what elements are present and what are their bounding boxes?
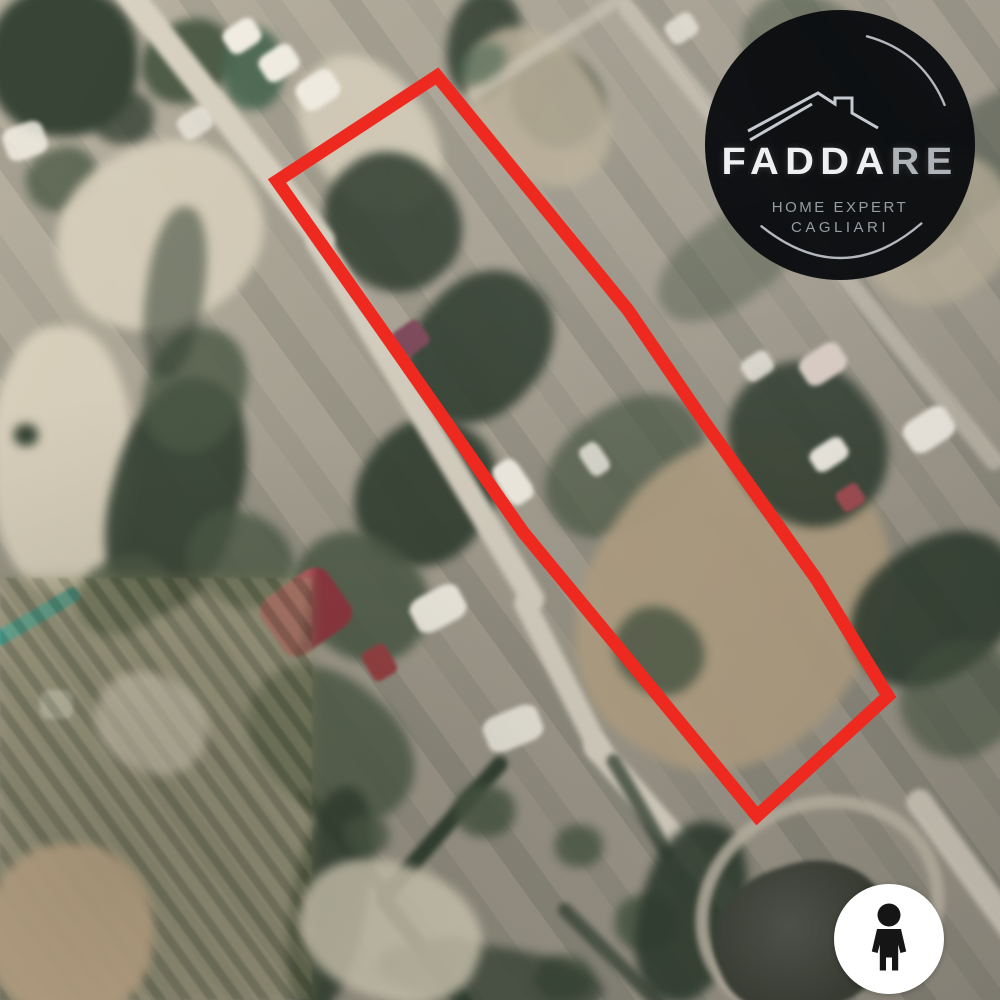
brand-primary: FADDA: [722, 141, 891, 183]
pegman-icon: [859, 901, 919, 977]
faddare-logo-badge: FADDARE HOME EXPERT CAGLIARI: [705, 10, 975, 280]
street-view-badge[interactable]: [834, 884, 944, 994]
logo-tagline-line2: CAGLIARI: [705, 219, 975, 236]
logo-brand-text: FADDARE: [698, 141, 982, 184]
satellite-map[interactable]: FADDARE HOME EXPERT CAGLIARI: [0, 0, 1000, 1000]
logo-tagline-line1: HOME EXPERT: [705, 199, 975, 216]
brand-secondary: RE: [890, 141, 958, 183]
house-roof-icon: [739, 90, 889, 142]
